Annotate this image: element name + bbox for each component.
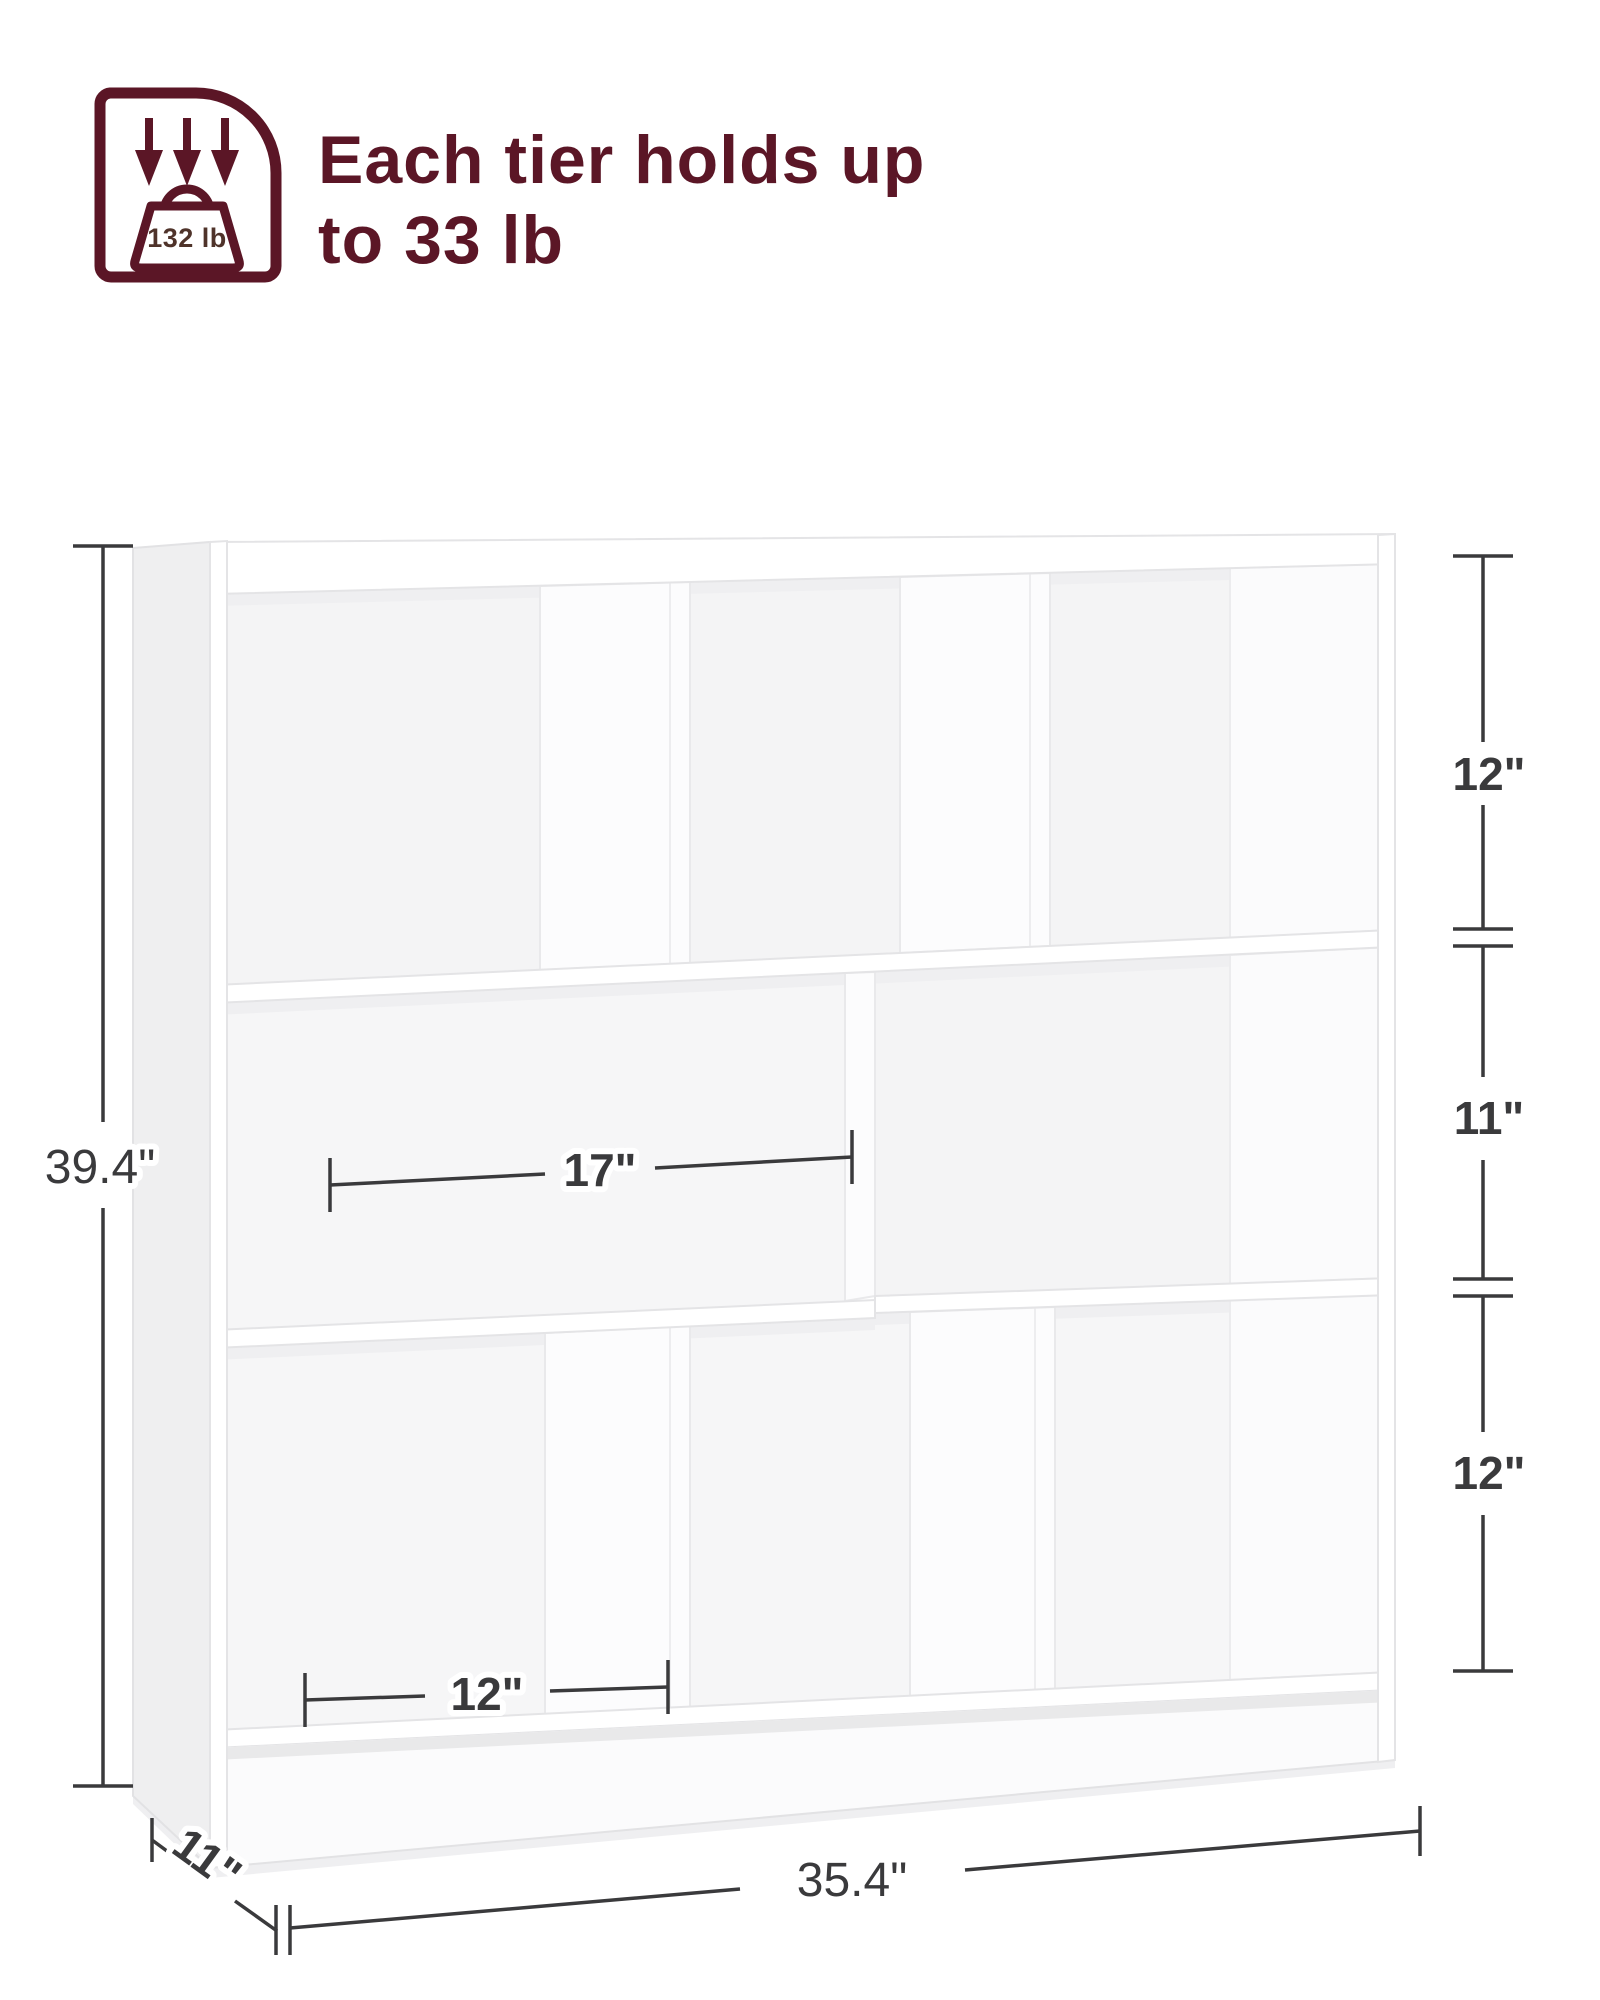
top-row-divider-2	[900, 573, 1050, 953]
arrow-head	[135, 150, 163, 186]
bottom-tier-height-label: 12"	[1453, 1447, 1526, 1499]
middle-row-right-wedge	[1230, 947, 1390, 1284]
headline-line-1: Each tier holds up	[318, 122, 925, 198]
headline-line-2: to 33 lb	[318, 202, 564, 278]
overall-width-label: 35.4"	[797, 1854, 907, 1907]
top-row-right-wedge	[1230, 564, 1390, 938]
top-row-back-panel	[215, 564, 1390, 985]
tier-height-dimensions: 12" 11" 12"	[1453, 556, 1526, 1671]
weight-capacity-label: 132 lb	[147, 223, 227, 253]
bottom-row-divider-2	[910, 1307, 1055, 1696]
arrow-head	[211, 150, 239, 186]
middle-tier-height-label: 11"	[1454, 1092, 1524, 1144]
middle-compartment-width-label: 17"	[564, 1144, 637, 1196]
bottom-row-divider-1	[545, 1326, 690, 1714]
left-side-panel	[133, 542, 210, 1868]
bottom-row-back-panel	[215, 1295, 1390, 1730]
middle-row-divider	[845, 972, 875, 1301]
load-arrows-icon	[135, 118, 239, 186]
top-tier-height-label: 12"	[1453, 748, 1526, 800]
left-front-stile	[210, 541, 227, 1868]
right-front-stile	[1378, 534, 1395, 1762]
bookshelf-illustration	[133, 534, 1395, 1878]
product-dimension-diagram: 132 lb Each tier holds up to 33 lb	[0, 0, 1600, 2000]
bottom-row-right-wedge	[1230, 1295, 1390, 1680]
arrow-head	[173, 150, 201, 186]
bottom-compartment-width-label: 12"	[451, 1668, 524, 1720]
middle-left-back-panel	[215, 973, 845, 1330]
capacity-badge: 132 lb	[100, 93, 276, 277]
weight-icon: 132 lb	[135, 189, 240, 268]
overall-height-label: 39.4"	[45, 1141, 155, 1194]
top-row-divider-1	[540, 582, 690, 970]
